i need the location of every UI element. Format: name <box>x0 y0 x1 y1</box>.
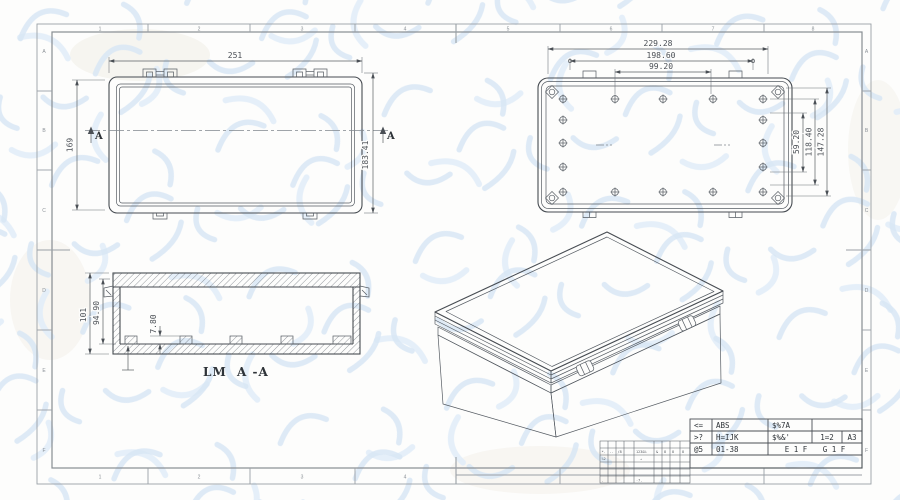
title-cell: G 1 F <box>823 445 846 454</box>
zone-row-label: F <box>42 448 45 454</box>
watermark <box>0 0 900 500</box>
zone-col-label-bottom: 2 <box>198 475 201 481</box>
dim-outer-height-value: 101 <box>79 308 88 323</box>
title-cell: @5 <box>694 445 703 454</box>
title-sheet-size: A3 <box>847 433 856 442</box>
zone-row-label: F <box>865 448 868 454</box>
zone-col-label-bottom: 4 <box>404 475 407 481</box>
dim-inner-value: 99.20 <box>649 62 673 71</box>
title-cell: ABS <box>716 421 730 430</box>
section-letter-label: A <box>386 131 395 142</box>
zone-col-label: 5 <box>507 27 510 33</box>
rev-cell: . <box>602 479 604 483</box>
zone-row-label: C <box>865 208 869 214</box>
zone-col-label: 6 <box>610 27 613 33</box>
zone-row-label: D <box>865 288 869 294</box>
dim-v-large-value: 147.28 <box>817 127 826 156</box>
title-cell: E 1 F <box>785 445 808 454</box>
drawing-sheet: 1 2 3 4 5 6 7 8 1 2 3 4 A B C D E F A B … <box>0 0 900 500</box>
zone-col-label: 7 <box>712 27 715 33</box>
rev-cell: 123&% <box>636 450 647 454</box>
dim-width-value: 251 <box>228 51 243 60</box>
title-scale: 1=2 <box>820 433 834 442</box>
rev-cell: -7. <box>636 479 642 483</box>
rev-cell: 8 <box>672 450 674 454</box>
zone-col-label-bottom: 3 <box>301 475 304 481</box>
dim-height-left-value: 169 <box>66 138 75 153</box>
rev-cell: 8 <box>664 450 666 454</box>
zone-col-label: 8 <box>812 27 815 33</box>
dim-mid-value: 198.60 <box>647 51 676 60</box>
title-cell: $%7A <box>772 421 791 430</box>
section-label-name: A -A <box>236 365 269 379</box>
zone-col-label-bottom: 1 <box>99 475 102 481</box>
dim-boss-height-value: 7.80 <box>149 314 158 333</box>
title-cell: <= <box>694 421 704 430</box>
title-cell: 01-38 <box>716 445 739 454</box>
zone-row-label: D <box>42 288 46 294</box>
rev-cell: /8 <box>618 450 622 454</box>
dim-v-mid-value: 118.40 <box>805 127 814 156</box>
title-cell: >? <box>694 433 703 442</box>
dim-v-small-value: 59.20 <box>792 130 801 154</box>
title-cell: H=IJK <box>716 433 739 442</box>
rev-cell: *. <box>602 450 606 454</box>
engineering-drawing: 1 2 3 4 5 6 7 8 1 2 3 4 A B C D E F A B … <box>0 0 900 500</box>
rev-cell: → <box>640 457 642 461</box>
zone-col-label: 2 <box>198 27 201 33</box>
zone-row-label: C <box>42 208 46 214</box>
zone-col-label: 1 <box>99 27 102 33</box>
dim-outer-value: 229.28 <box>644 39 673 48</box>
rev-cell: 8 <box>682 450 684 454</box>
zone-col-label: 4 <box>404 27 407 33</box>
rev-cell: -. <box>610 450 614 454</box>
zone-col-label: 3 <box>301 27 304 33</box>
dim-height-right-value: 183.41 <box>361 140 370 169</box>
rev-cell: %2 <box>602 457 606 461</box>
section-letter-label: A <box>94 131 103 142</box>
section-label-prefix: LM <box>203 365 227 379</box>
dim-inner-height-value: 94.90 <box>92 301 101 325</box>
title-cell: $%&' <box>772 433 790 442</box>
